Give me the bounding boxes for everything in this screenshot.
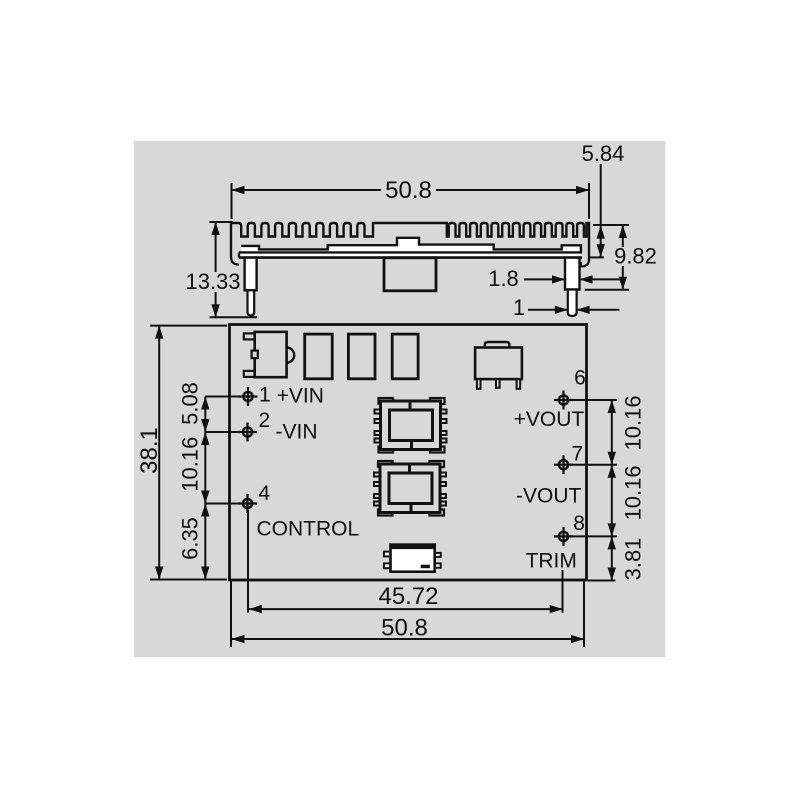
svg-text:7: 7 [572, 443, 584, 466]
svg-text:+VOUT: +VOUT [514, 408, 585, 431]
svg-text:45.72: 45.72 [378, 583, 438, 610]
svg-text:4: 4 [258, 482, 270, 505]
svg-text:9.82: 9.82 [614, 244, 657, 269]
svg-text:2: 2 [259, 409, 271, 432]
svg-text:13.33: 13.33 [185, 269, 240, 294]
svg-text:-VOUT: -VOUT [516, 485, 582, 508]
svg-text:1.8: 1.8 [488, 266, 519, 291]
svg-text:-VIN: -VIN [276, 421, 318, 444]
svg-text:50.8: 50.8 [381, 615, 428, 642]
svg-text:5.84: 5.84 [582, 141, 625, 166]
svg-text:38.1: 38.1 [136, 427, 163, 474]
svg-text:3.81: 3.81 [620, 538, 645, 581]
svg-text:CONTROL: CONTROL [257, 518, 360, 541]
svg-text:1: 1 [259, 384, 271, 407]
svg-text:1: 1 [513, 295, 525, 320]
svg-text:10.16: 10.16 [620, 395, 645, 450]
svg-text:TRIM: TRIM [526, 549, 577, 572]
svg-text:5.08: 5.08 [178, 382, 203, 425]
svg-text:10.16: 10.16 [620, 465, 645, 520]
svg-text:10.16: 10.16 [178, 437, 203, 492]
svg-text:50.8: 50.8 [385, 177, 432, 204]
svg-text:6.35: 6.35 [178, 517, 203, 560]
svg-text:8: 8 [573, 512, 585, 535]
svg-text:+VIN: +VIN [277, 385, 324, 408]
svg-text:6: 6 [574, 367, 586, 390]
